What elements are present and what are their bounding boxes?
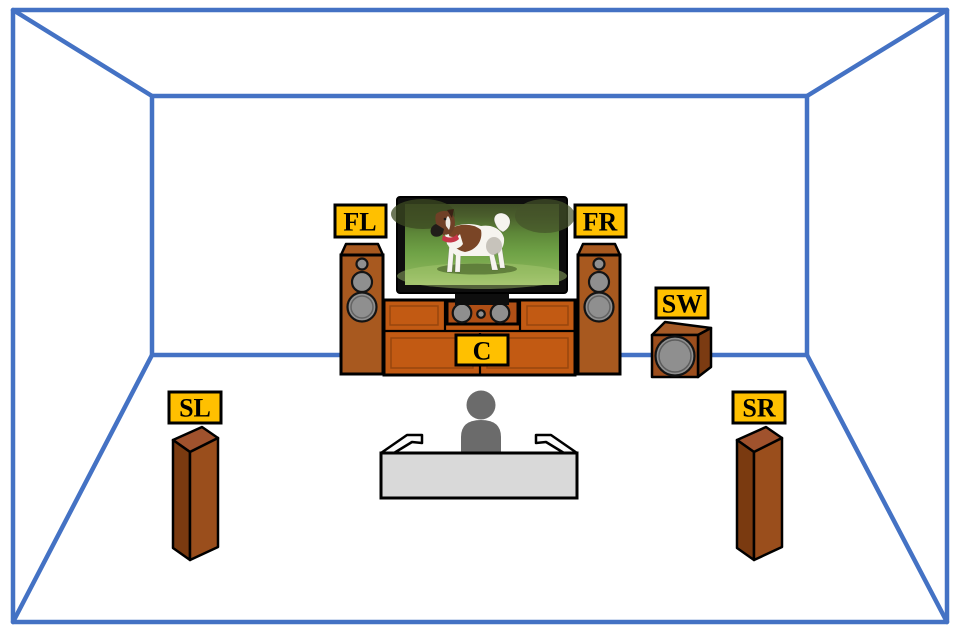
label-text: FR [583,208,618,237]
room-corner-edge-bottom-right [807,355,947,622]
tweeter-driver [594,259,605,270]
dog-eye [444,218,447,221]
woofer-driver [348,293,377,322]
listener-head [467,391,496,420]
center-speaker-driver-left [453,304,472,323]
label-surround-right: SR [733,392,785,423]
label-text: FL [343,208,376,237]
label-front-right: FR [575,205,626,237]
label-subwoofer: SW [656,288,708,319]
front-left-speaker [341,244,383,374]
room-corner-edge-bottom-left [13,355,152,622]
label-text: SW [662,290,702,319]
room-corner-edge-top-right [807,10,947,96]
speaker-side-face [754,438,782,560]
center-speaker-tweeter [477,310,485,318]
dog-haunch-shading [486,237,502,255]
midrange-driver [589,272,609,292]
label-text: SL [179,394,211,423]
home-theater-layout-diagram: FL FR C SW SL SR [0,0,960,637]
label-text: C [473,337,492,366]
couch-armrest-left [381,435,422,453]
midrange-driver [352,272,372,292]
subwoofer [652,322,711,377]
front-right-speaker [578,244,620,374]
speaker-top-cap [578,244,620,255]
listener [461,391,501,454]
couch-back [381,453,577,498]
room-corner-edge-top-left [13,10,152,96]
woofer-driver [585,293,614,322]
bush-blur [515,199,575,233]
subwoofer-driver [656,337,695,376]
speaker-front-face [737,440,754,560]
speaker-front-face [173,440,190,560]
label-front-left: FL [335,205,386,237]
label-surround-left: SL [169,392,221,423]
center-speaker-driver-right [491,304,510,323]
listener-body [461,420,501,453]
surround-left-speaker [173,427,218,560]
subwoofer-side-face [698,328,711,377]
couch-armrest-right [536,435,577,453]
tv [391,197,575,305]
label-center: C [456,335,508,366]
speaker-top-cap [341,244,383,255]
label-text: SR [742,394,775,423]
surround-right-speaker [737,427,782,560]
speaker-side-face [190,438,218,560]
tweeter-driver [357,259,368,270]
diagram-canvas: FL FR C SW SL SR [0,0,960,637]
